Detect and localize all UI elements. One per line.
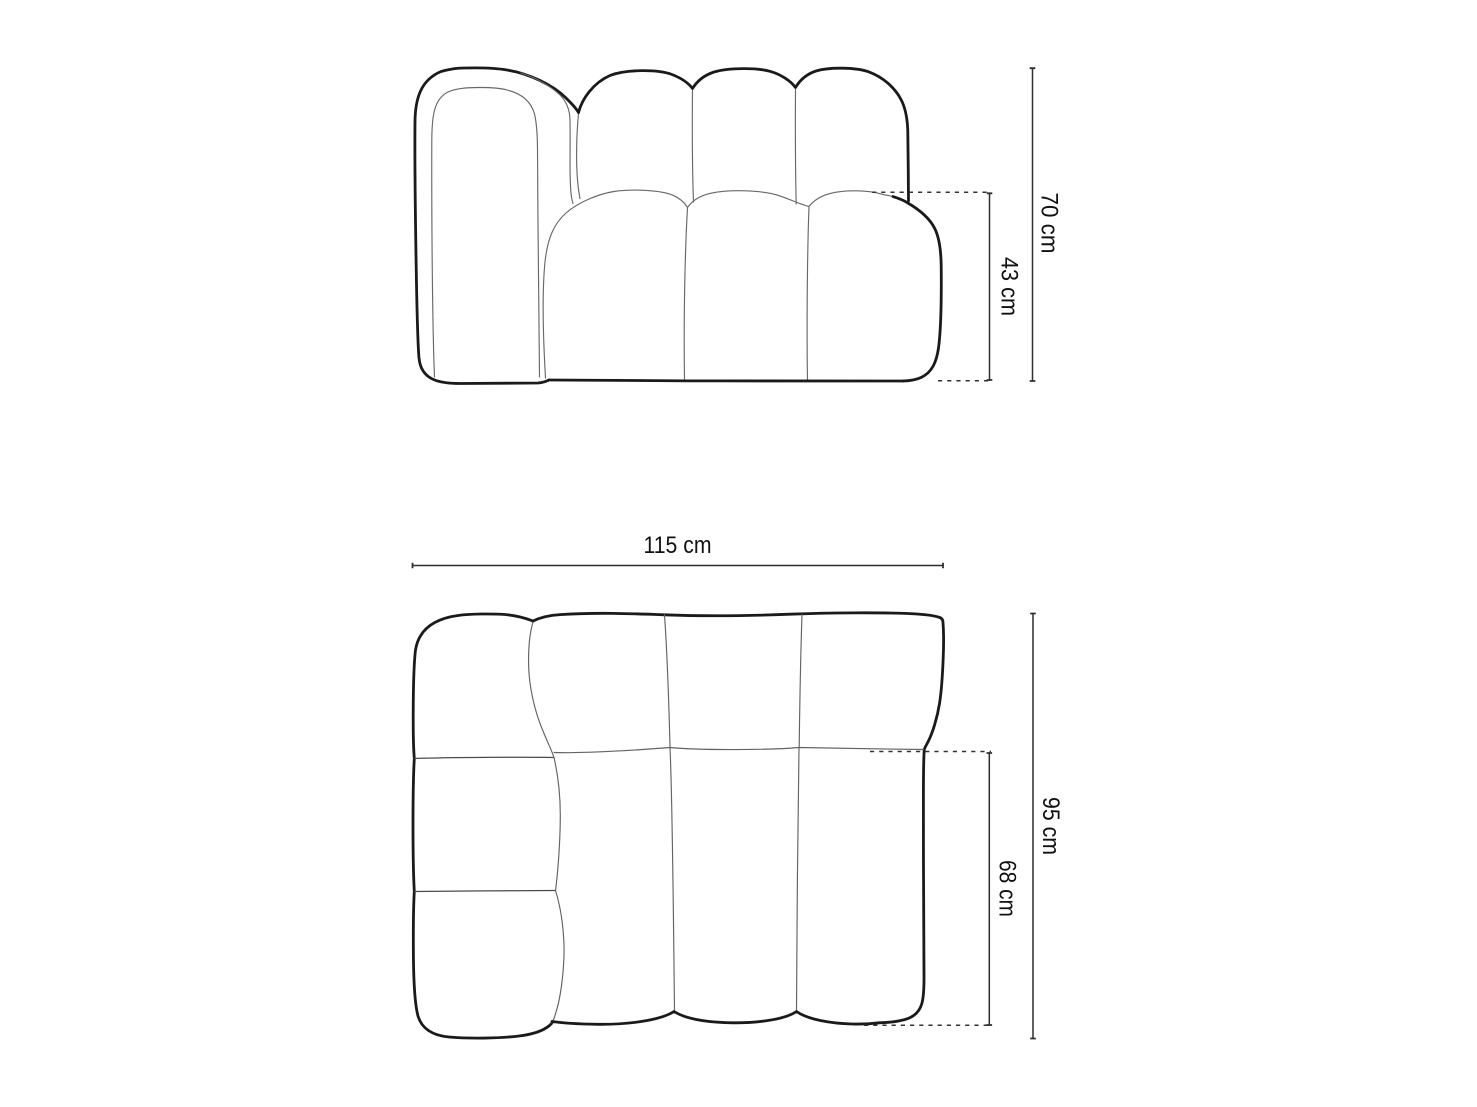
svg-text:95 cm: 95 cm (1037, 797, 1064, 855)
svg-text:70 cm: 70 cm (1036, 193, 1063, 254)
svg-text:115 cm: 115 cm (644, 532, 712, 559)
svg-text:68 cm: 68 cm (994, 860, 1021, 917)
svg-text:43 cm: 43 cm (996, 257, 1023, 316)
